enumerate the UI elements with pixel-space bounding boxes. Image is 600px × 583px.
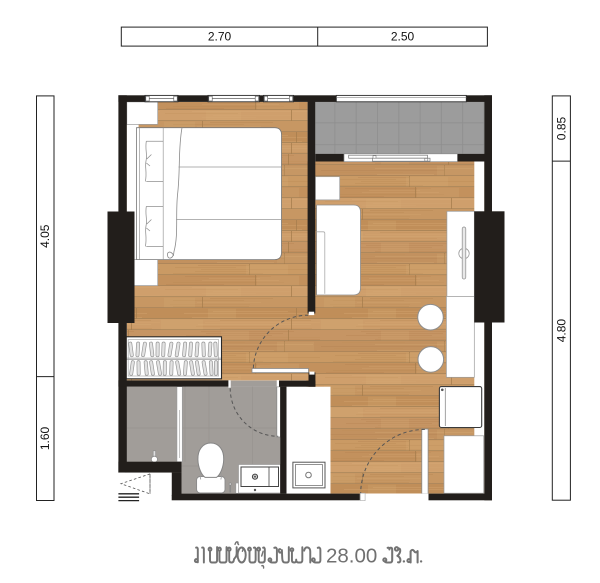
svg-text:1.60: 1.60 (38, 426, 52, 450)
svg-text:2.50: 2.50 (391, 30, 415, 44)
svg-text:4.05: 4.05 (38, 224, 52, 248)
svg-text:0.85: 0.85 (554, 116, 568, 140)
svg-text:28.00: 28.00 (326, 545, 377, 568)
svg-text:4.80: 4.80 (554, 319, 568, 343)
svg-text:2.70: 2.70 (208, 30, 232, 44)
